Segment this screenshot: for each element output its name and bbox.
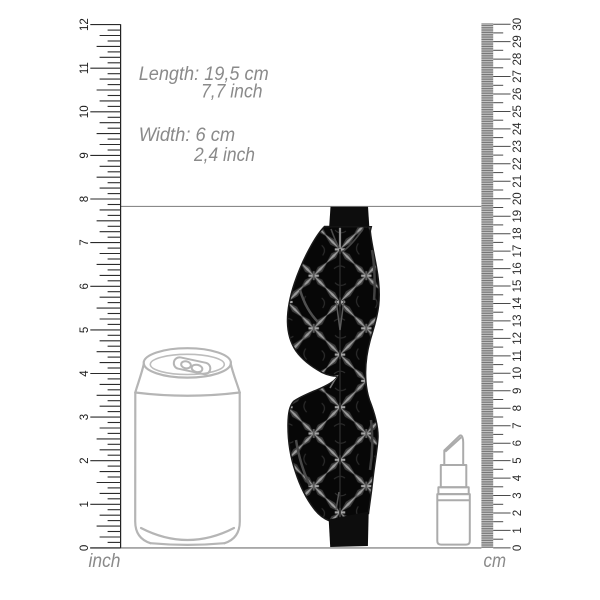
svg-text:7: 7 [79, 239, 91, 245]
svg-text:7: 7 [512, 422, 524, 428]
svg-text:8: 8 [512, 405, 524, 411]
svg-text:26: 26 [512, 88, 524, 101]
svg-text:1: 1 [79, 501, 91, 507]
svg-text:4: 4 [512, 474, 524, 481]
svg-text:3: 3 [79, 414, 91, 420]
svg-text:10: 10 [512, 367, 524, 380]
svg-text:3: 3 [512, 492, 524, 498]
svg-text:2: 2 [512, 510, 524, 516]
svg-text:16: 16 [512, 262, 524, 275]
svg-text:0: 0 [512, 545, 524, 551]
svg-text:6: 6 [512, 440, 524, 446]
svg-text:4: 4 [79, 370, 91, 377]
svg-text:21: 21 [512, 175, 524, 188]
svg-text:cm: cm [484, 551, 507, 572]
svg-text:6: 6 [79, 283, 91, 289]
svg-text:9: 9 [512, 388, 524, 394]
svg-text:15: 15 [512, 280, 524, 293]
svg-text:2: 2 [79, 457, 91, 463]
svg-text:1: 1 [512, 527, 524, 533]
svg-text:5: 5 [512, 457, 524, 463]
svg-text:29: 29 [512, 35, 524, 48]
svg-text:Width: 6 cm: Width: 6 cm [139, 124, 236, 146]
svg-text:8: 8 [79, 196, 91, 202]
svg-text:10: 10 [79, 105, 91, 118]
svg-text:12: 12 [79, 18, 91, 31]
svg-text:7,7 inch: 7,7 inch [201, 81, 263, 103]
svg-text:23: 23 [512, 140, 524, 153]
svg-text:13: 13 [512, 315, 524, 328]
svg-text:11: 11 [79, 62, 91, 74]
svg-text:27: 27 [512, 70, 524, 83]
svg-text:14: 14 [512, 297, 524, 310]
svg-text:22: 22 [512, 157, 524, 170]
svg-text:5: 5 [79, 327, 91, 333]
svg-text:20: 20 [512, 192, 524, 205]
svg-text:19: 19 [512, 210, 524, 223]
svg-text:9: 9 [79, 152, 91, 158]
svg-text:30: 30 [512, 18, 524, 31]
svg-text:28: 28 [512, 53, 524, 66]
svg-text:2,4 inch: 2,4 inch [193, 144, 255, 166]
svg-text:25: 25 [512, 105, 524, 118]
svg-text:11: 11 [512, 350, 524, 362]
svg-text:18: 18 [512, 227, 524, 240]
svg-text:17: 17 [512, 245, 524, 258]
svg-text:12: 12 [512, 332, 524, 345]
svg-text:inch: inch [89, 551, 121, 572]
svg-text:24: 24 [512, 122, 524, 135]
